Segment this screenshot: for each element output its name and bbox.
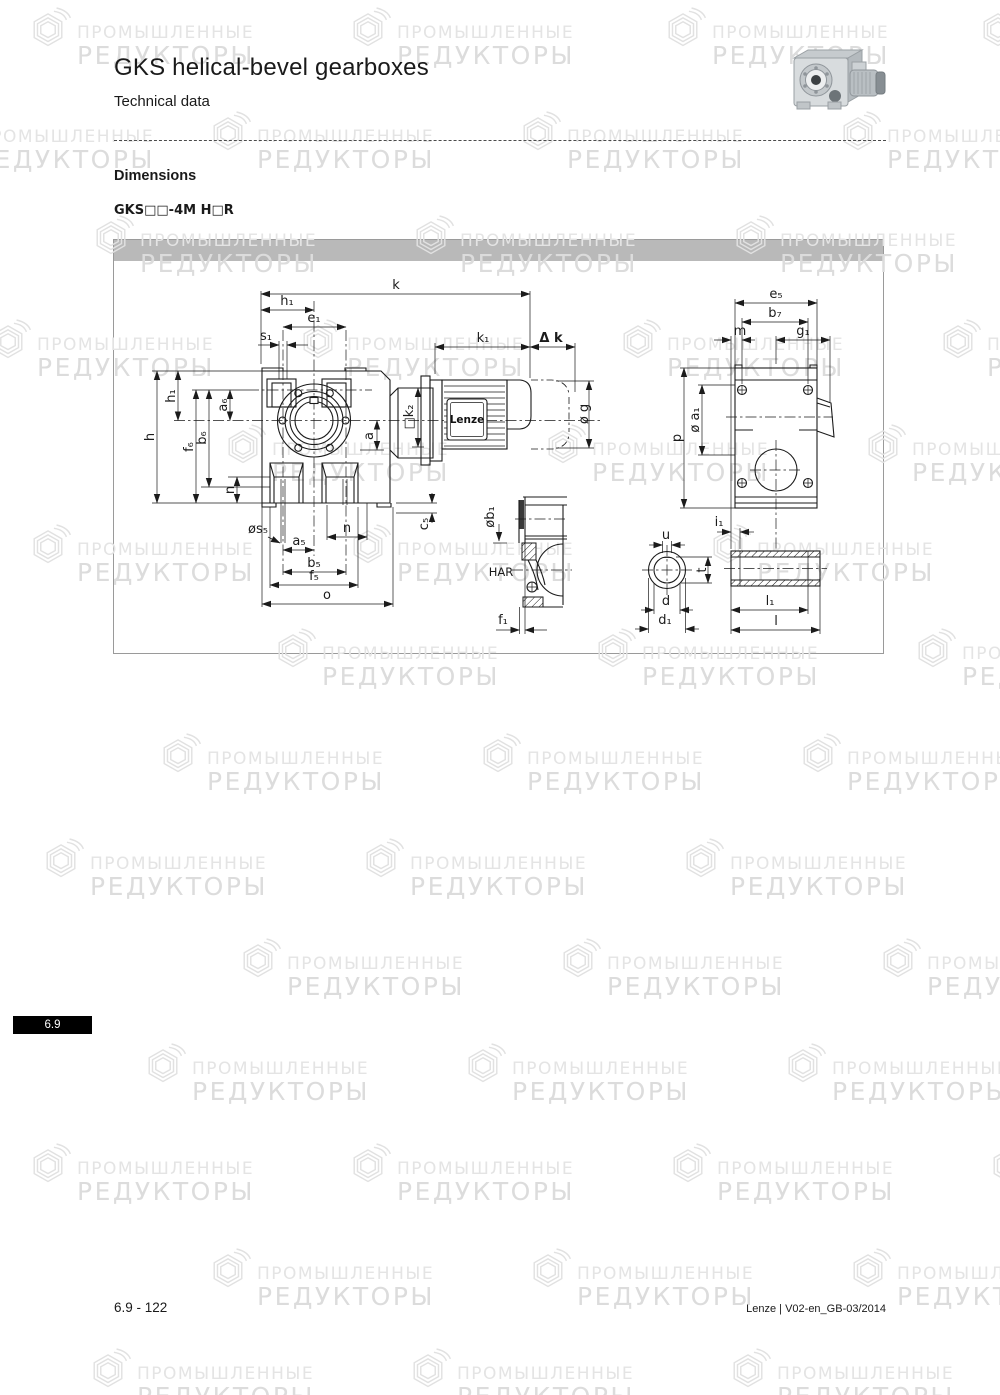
- catalog-page: ПРОМЫШЛЕННЫЕРЕДУКТОРЫПРОМЫШЛЕННЫЕРЕДУКТО…: [0, 0, 1000, 1395]
- dim-label-n-bottom: n: [343, 521, 351, 536]
- dim-label-t: t: [695, 567, 710, 572]
- dim-label-a: a: [362, 432, 377, 440]
- dim-label-h: h: [143, 433, 158, 441]
- dim-label-b7: b₇: [768, 306, 781, 321]
- dim-label-d: d: [662, 594, 670, 609]
- dim-label-g1: g₁: [796, 324, 809, 339]
- dim-label-s5: øs₅: [248, 522, 268, 537]
- dim-label-b1: øb₁: [483, 506, 498, 527]
- dim-label-a6: a₆: [216, 398, 231, 411]
- footer-page-number: 6.9 - 122: [114, 1300, 167, 1315]
- lenze-nameplate: Lenze: [450, 414, 485, 426]
- gearbox-photo-art: [794, 50, 885, 109]
- divider: [114, 140, 886, 141]
- dim-label-e1: e₁: [307, 311, 320, 326]
- dim-label-g: ø g: [577, 404, 592, 424]
- dim-label-d1: d₁: [658, 613, 671, 628]
- footer-doc-reference: Lenze | V02-en_GB-03/2014: [746, 1303, 886, 1315]
- dim-label-l1: l₁: [766, 594, 775, 609]
- dimension-drawing: Lenze k h₁ e₁ s₁ k₁ Δ k: [113, 237, 885, 655]
- page-subtitle: Technical data: [114, 93, 210, 110]
- hollow-shaft-detail: l₁ l: [724, 551, 827, 634]
- dim-label-p: p: [670, 434, 685, 442]
- dim-label-i1: i₁: [715, 515, 724, 530]
- dim-label-u: u: [662, 528, 670, 543]
- section-heading: Dimensions: [114, 168, 196, 184]
- dim-label-s1: s₁: [260, 329, 272, 344]
- dim-label-m: m: [734, 324, 747, 339]
- dim-label-delta-k: Δ k: [539, 331, 563, 346]
- dim-label-c5: c₅: [417, 518, 432, 530]
- dim-label-f5: f₅: [309, 569, 319, 584]
- dim-label-b6: b₆: [195, 431, 210, 444]
- dim-label-k2: □k₂: [402, 404, 417, 429]
- dim-label-e5: e₅: [769, 287, 782, 302]
- page-title: GKS helical-bevel gearboxes: [114, 54, 429, 82]
- dim-label-f1: f₁: [498, 613, 508, 628]
- view-label-har: HAR: [489, 565, 514, 579]
- dim-label-a5: a₅: [292, 534, 305, 549]
- dim-label-l: l: [774, 614, 778, 629]
- dim-label-k1: k₁: [477, 331, 490, 346]
- dim-label-n-left: n: [223, 486, 238, 494]
- dim-label-h1-left: h₁: [164, 389, 179, 402]
- side-view: e₅ b₇ m g₁ p ø a₁ i₁: [670, 287, 834, 549]
- dim-label-a1: ø a₁: [688, 407, 703, 432]
- dim-label-k: k: [392, 278, 400, 293]
- model-designation: GKS□□-4M H□R: [114, 203, 234, 218]
- shaft-end-view: u t d d₁: [635, 528, 712, 633]
- section-badge: 6.9: [13, 1016, 92, 1034]
- dim-label-o: o: [323, 588, 331, 603]
- har-detail: øb₁ HAR f₁: [483, 497, 572, 634]
- dim-label-h1-top: h₁: [280, 294, 293, 309]
- gearbox-photo: [786, 44, 892, 124]
